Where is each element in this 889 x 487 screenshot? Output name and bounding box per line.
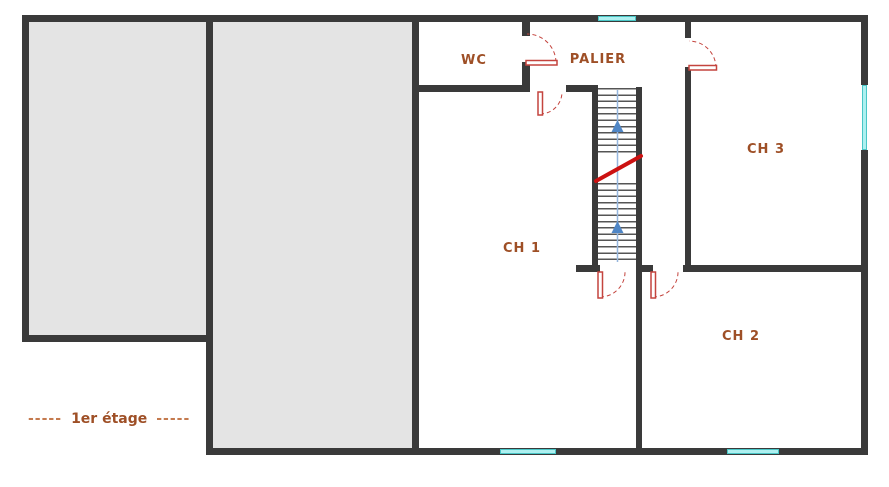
- window-bottom-ch1: [500, 449, 556, 454]
- exterior-wall-right-lower: [861, 150, 868, 455]
- room-label-wc: WC: [448, 53, 500, 68]
- room-label-ch1: CH 1: [490, 241, 554, 256]
- wall-shaded-ch1: [412, 15, 419, 455]
- exterior-wall-left: [22, 15, 29, 342]
- wall-stair-foot-stub: [576, 265, 600, 272]
- wall-wc-palier-stub: [522, 22, 530, 36]
- room-label-ch2: CH 2: [709, 329, 773, 344]
- wall-between-shaded-areas: [206, 15, 213, 455]
- shaded-area-center: [213, 22, 412, 448]
- door-leaf-ch2: [651, 272, 656, 298]
- floor-plan-canvas: WC PALIER CH 1 CH 2 CH 3 ----- 1er étage…: [0, 0, 889, 487]
- exterior-wall-right-upper: [861, 15, 868, 85]
- window-right-ch3: [862, 85, 867, 150]
- floor-label-text: 1er étage: [71, 411, 147, 427]
- door-arc-ch1-landing: [600, 272, 625, 297]
- wall-palier-ch3-stub: [685, 22, 691, 38]
- door-leaf-ch1-top: [538, 92, 543, 115]
- wall-landing-stub: [636, 265, 653, 272]
- wall-wc-palier-lower: [522, 62, 530, 92]
- floor-label-dashes-right: -----: [156, 411, 190, 427]
- door-arc-ch3: [689, 41, 716, 68]
- room-label-ch3: CH 3: [734, 142, 798, 157]
- floor-label: ----- 1er étage -----: [28, 411, 190, 427]
- window-bottom-ch2: [727, 449, 779, 454]
- door-arc-ch2: [653, 272, 678, 297]
- staircase-upper-flight: [598, 88, 636, 153]
- floor-label-dashes-left: -----: [28, 411, 62, 427]
- stairs-break-line: [596, 156, 641, 181]
- door-leaf-wc: [526, 61, 557, 66]
- room-label-palier: PALIER: [562, 52, 634, 67]
- staircase-lower-flight: [598, 183, 636, 265]
- door-arc-ch1-top: [540, 92, 562, 114]
- door-leaf-ch3: [689, 66, 717, 71]
- door-arc-wc: [527, 34, 556, 62]
- wall-ch3-ch2: [683, 265, 861, 272]
- door-leaf-ch1-landing: [598, 272, 603, 298]
- wall-wc-bottom: [412, 85, 530, 92]
- window-top-palier: [598, 16, 636, 21]
- wall-palier-ch3: [685, 67, 691, 272]
- exterior-wall-annex-bottom: [22, 335, 213, 342]
- exterior-wall-top: [22, 15, 868, 22]
- shaded-area-left: [29, 22, 206, 335]
